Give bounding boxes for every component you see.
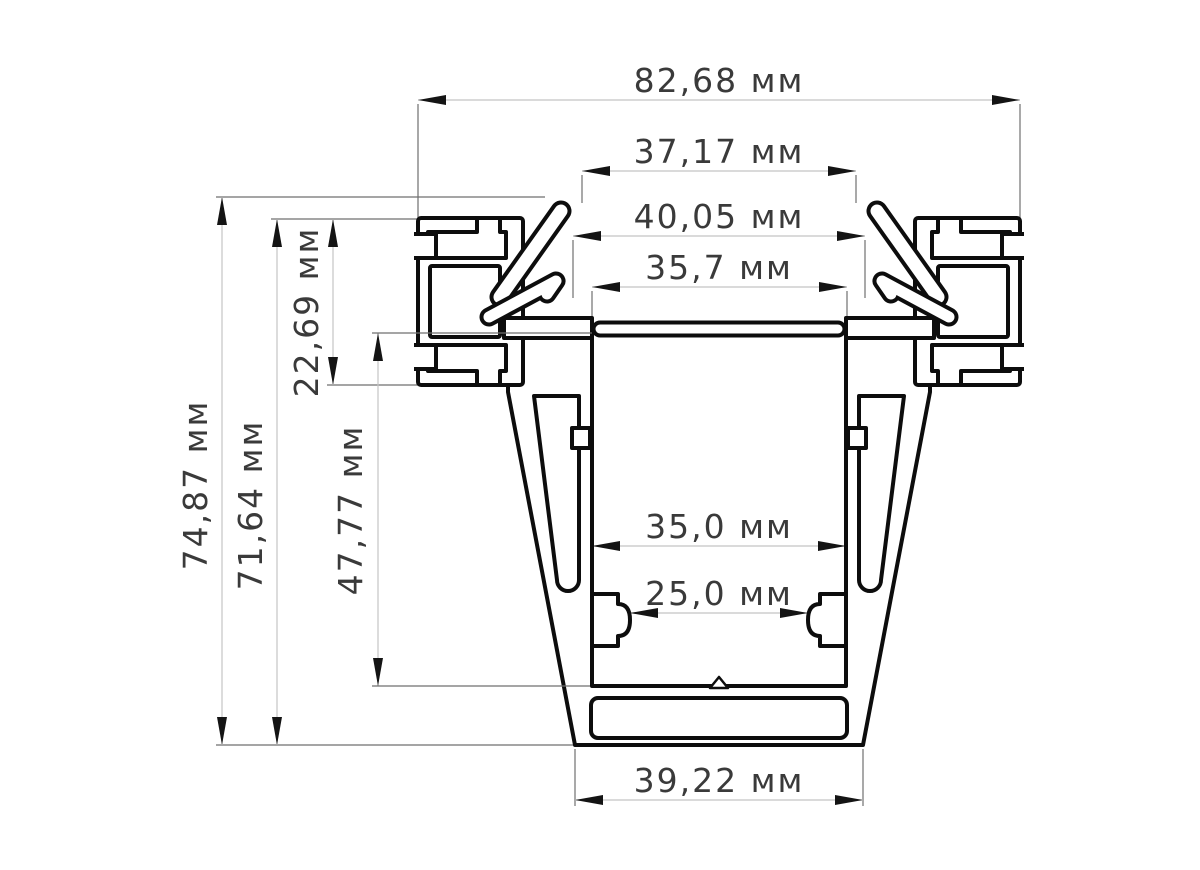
flange-left-edge-notch-top	[414, 234, 436, 258]
dim-label-body-height: 71,64 мм	[231, 420, 270, 591]
arrow-overall-height-top	[217, 197, 227, 225]
dim-label-bottom-width: 39,22 мм	[634, 761, 805, 800]
arrow-cavity-width-left	[592, 541, 620, 551]
dim-label-top-opening: 35,7 мм	[645, 248, 793, 287]
arrow-overall-width-left	[418, 95, 446, 105]
arrow-body-height-bottom	[272, 717, 282, 745]
arrow-bottom-width-left	[575, 795, 603, 805]
flange-right-edge-notch-top	[1002, 234, 1024, 258]
floor-centre-notch	[710, 677, 728, 688]
dim-label-tip-span: 37,17 мм	[634, 132, 805, 171]
drawing-canvas: 82,68 мм 37,17 мм 40,05 мм 35,7 мм 35,0 …	[0, 0, 1200, 870]
arrow-overall-height-bottom	[217, 717, 227, 745]
profile	[414, 211, 1024, 745]
dim-label-cavity-width: 35,0 мм	[645, 507, 793, 546]
dim-label-flange-height: 22,69 мм	[287, 227, 326, 398]
arrow-top-opening-right	[819, 282, 847, 292]
dim-label-slot-opening: 25,0 мм	[645, 574, 793, 613]
arrow-body-height-top	[272, 219, 282, 247]
arrow-tip-span-right	[828, 166, 856, 176]
arrow-cavity-depth-bottom	[373, 658, 383, 686]
arrow-tip-span-left	[582, 166, 610, 176]
arrow-hook-span-left	[573, 231, 601, 241]
snap-hook-right	[808, 594, 846, 646]
arrow-flange-height-bottom	[328, 357, 338, 385]
arrow-top-opening-left	[592, 282, 620, 292]
arrow-bottom-width-right	[835, 795, 863, 805]
snap-hook-left	[592, 594, 630, 646]
arrow-flange-height-top	[328, 219, 338, 247]
dim-label-overall-height: 74,87 мм	[176, 400, 215, 571]
arrow-cavity-depth-top	[373, 333, 383, 361]
dim-label-hook-span: 40,05 мм	[634, 197, 805, 236]
flange-left-edge-notch-bottom	[414, 345, 436, 369]
bottom-chamber	[591, 698, 847, 738]
flange-right-edge-notch-bottom	[1002, 345, 1024, 369]
dim-label-cavity-depth: 47,77 мм	[331, 425, 370, 596]
dim-label-overall-width: 82,68 мм	[634, 61, 805, 100]
shelf-left	[504, 318, 592, 338]
shelf-right	[846, 318, 934, 338]
arrow-cavity-width-right	[818, 541, 846, 551]
wall-step-left	[572, 428, 590, 448]
arrow-hook-span-right	[837, 231, 865, 241]
wall-step-right	[848, 428, 866, 448]
technical-drawing: 82,68 мм 37,17 мм 40,05 мм 35,7 мм 35,0 …	[0, 0, 1200, 870]
arrow-overall-width-right	[992, 95, 1020, 105]
